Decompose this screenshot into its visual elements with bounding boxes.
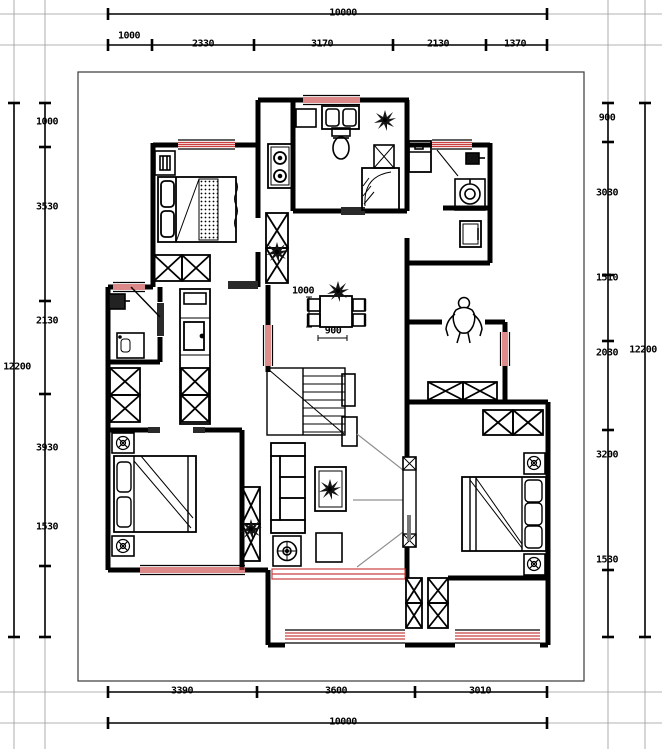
dim-top-4: 2130 [427,39,449,50]
floor-fan [273,536,301,566]
wardrobe-bedroom1 [154,255,210,281]
tv-table [316,533,342,562]
plant-icon [319,479,341,500]
dim-dining-depth: 900 [325,326,342,337]
sofa [271,443,305,533]
dim-right-6: 1530 [596,555,618,566]
lamp-icon [528,457,541,470]
bed-topleft [158,177,238,242]
shaft [374,145,394,168]
cabinet [460,221,481,247]
washer [296,109,316,127]
oven [184,322,204,350]
dim-left-1: 1000 [36,117,58,128]
dim-top-3: 3170 [311,39,333,50]
walls [108,100,548,645]
bathroom-left [109,287,160,358]
kitchen-column [180,289,210,424]
bed-bottomright [462,477,546,551]
lamp-icon [528,558,541,571]
dim-right-4: 2030 [596,348,618,359]
wall-switch [466,153,479,164]
dim-right-3: 1510 [596,273,618,284]
cooktop [268,144,292,188]
kitchen-sink [455,179,485,210]
plant-icon [327,281,349,302]
dim-bottom-3: 3010 [469,686,491,697]
washing-machine [117,333,144,358]
dim-left-3: 2130 [36,316,58,327]
dim-left-total: 12200 [3,362,31,373]
dining-set [308,296,365,327]
balcony-door-band [272,569,405,579]
wardrobe-bedroom3 [483,410,543,435]
dim-left-5: 1530 [36,522,58,533]
person-figure [446,298,482,344]
dim-top-5: 1370 [504,39,526,50]
lamp-icon [117,437,130,450]
dim-right-5: 3200 [596,450,618,461]
kitchen-topright [409,141,485,247]
balcony-columns [406,578,448,628]
construction-grid [0,0,662,749]
dim-right-total: 12200 [629,345,657,356]
nightstand-topleft [155,151,175,175]
door-handle [407,515,411,541]
toilet [332,128,350,159]
dim-right-1: 900 [599,113,616,124]
dim-bottom-2: 3600 [325,686,347,697]
lamp-icon [117,540,130,553]
dim-bottom-total: 10000 [329,717,357,728]
wall-sink [109,294,125,309]
plant-icon [374,110,396,131]
shower [362,168,399,210]
dim-top-total: 10000 [329,8,357,19]
wardrobe-left-column [110,368,140,422]
floor-plan-page: 10000 1000 2330 3170 2130 1370 3390 3600… [0,0,662,749]
dim-dining-width: 1000 [292,286,314,297]
dim-top-1: 1000 [118,31,140,42]
dim-left-2: 3530 [36,202,58,213]
dim-right-2: 3030 [596,188,618,199]
wardrobe-entry [428,382,497,400]
dim-bottom-1: 3390 [171,686,193,697]
dim-left-4: 3930 [36,443,58,454]
wardrobe-kitchen-column [181,368,209,422]
floor-plan-canvas [0,0,662,749]
stairs [267,368,345,435]
dim-top-2: 2330 [192,39,214,50]
bed-bottomleft [114,456,196,532]
